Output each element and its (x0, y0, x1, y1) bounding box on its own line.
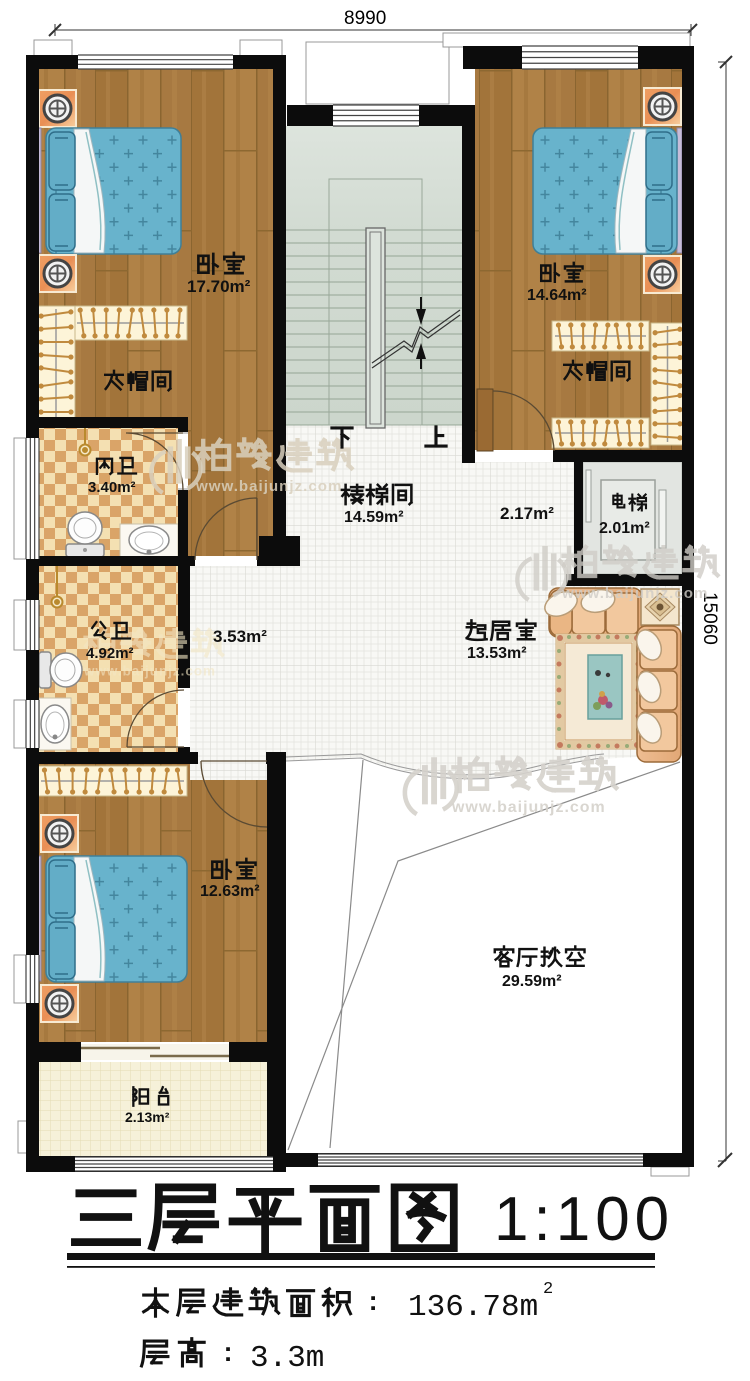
svg-text:13.53m²: 13.53m² (467, 645, 527, 662)
svg-text:www.baijunjz.com: www.baijunjz.com (561, 585, 708, 602)
svg-text:www.baijunjz.com: www.baijunjz.com (83, 663, 216, 678)
svg-text:www.baijunjz.com: www.baijunjz.com (195, 478, 342, 495)
svg-text:4.92m²: 4.92m² (86, 645, 134, 662)
svg-text:2.01m²: 2.01m² (599, 520, 650, 537)
svg-text:2.17m²: 2.17m² (500, 504, 554, 523)
svg-text:29.59m²: 29.59m² (502, 973, 562, 990)
svg-text:2: 2 (543, 1280, 553, 1299)
svg-text:14.59m²: 14.59m² (344, 509, 404, 526)
svg-text:2.13m²: 2.13m² (125, 1109, 170, 1125)
svg-text:www.baijunjz.com: www.baijunjz.com (451, 799, 606, 816)
svg-text:3.3m: 3.3m (250, 1341, 324, 1376)
svg-text:3.53m²: 3.53m² (213, 627, 267, 646)
svg-text:136.78m: 136.78m (408, 1290, 538, 1325)
svg-text:8990: 8990 (344, 8, 386, 29)
svg-text:14.64m²: 14.64m² (527, 287, 587, 304)
svg-text:12.63m²: 12.63m² (200, 883, 260, 900)
svg-text:1:100: 1:100 (494, 1185, 674, 1254)
svg-text:17.70m²: 17.70m² (187, 277, 251, 296)
svg-text:3.40m²: 3.40m² (88, 479, 136, 496)
